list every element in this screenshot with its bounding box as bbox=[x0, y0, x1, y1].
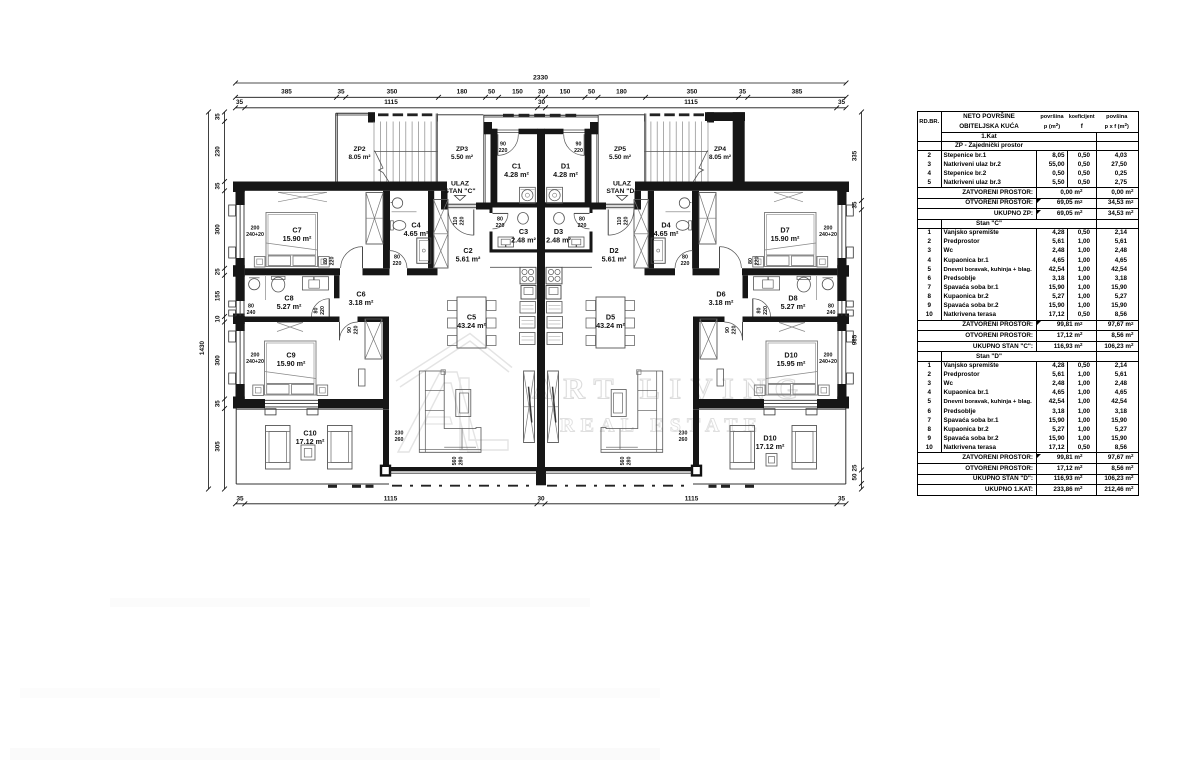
svg-text:50: 50 bbox=[852, 473, 859, 480]
svg-text:25: 25 bbox=[852, 464, 859, 471]
svg-text:15.90 m²: 15.90 m² bbox=[277, 359, 306, 368]
svg-text:1115: 1115 bbox=[384, 99, 398, 106]
svg-text:30: 30 bbox=[537, 496, 545, 503]
svg-text:5.61 m²: 5.61 m² bbox=[456, 255, 481, 264]
svg-text:230: 230 bbox=[679, 431, 688, 437]
svg-text:150: 150 bbox=[560, 89, 571, 96]
svg-text:15.90 m²: 15.90 m² bbox=[283, 234, 312, 243]
svg-text:15.95 m²: 15.95 m² bbox=[777, 359, 806, 368]
svg-text:80: 80 bbox=[757, 308, 763, 314]
svg-text:220: 220 bbox=[460, 217, 466, 226]
svg-text:280: 280 bbox=[627, 457, 633, 466]
svg-text:STAN "C": STAN "C" bbox=[444, 188, 475, 195]
svg-text:17.12 m²: 17.12 m² bbox=[296, 437, 325, 446]
svg-text:43.24 m²: 43.24 m² bbox=[457, 321, 486, 330]
svg-text:305: 305 bbox=[215, 441, 222, 452]
svg-text:50: 50 bbox=[488, 89, 496, 96]
svg-text:180: 180 bbox=[457, 89, 468, 96]
svg-text:4.65 m²: 4.65 m² bbox=[404, 229, 429, 238]
svg-text:385: 385 bbox=[281, 89, 292, 96]
svg-text:10: 10 bbox=[215, 315, 222, 322]
svg-text:17.12 m²: 17.12 m² bbox=[756, 442, 785, 451]
svg-text:2.48 m²: 2.48 m² bbox=[546, 236, 571, 245]
svg-text:560: 560 bbox=[620, 457, 626, 466]
svg-text:220: 220 bbox=[393, 261, 402, 267]
svg-text:ZP2: ZP2 bbox=[353, 146, 365, 153]
svg-text:50: 50 bbox=[588, 89, 596, 96]
svg-text:220: 220 bbox=[574, 148, 583, 154]
svg-text:5.27 m²: 5.27 m² bbox=[277, 302, 302, 311]
svg-text:4.65 m²: 4.65 m² bbox=[654, 229, 679, 238]
svg-text:80: 80 bbox=[314, 308, 320, 314]
svg-text:35: 35 bbox=[215, 182, 222, 189]
svg-text:220: 220 bbox=[496, 223, 505, 229]
svg-text:220: 220 bbox=[499, 148, 508, 154]
svg-text:240: 240 bbox=[247, 310, 256, 316]
svg-text:ZP4: ZP4 bbox=[714, 146, 726, 153]
svg-text:240+20: 240+20 bbox=[819, 232, 837, 238]
svg-text:35: 35 bbox=[852, 201, 859, 208]
svg-text:30: 30 bbox=[538, 99, 546, 106]
svg-text:200: 200 bbox=[251, 226, 260, 232]
svg-text:300: 300 bbox=[215, 224, 222, 235]
svg-text:180: 180 bbox=[616, 89, 627, 96]
svg-text:8.05 m²: 8.05 m² bbox=[709, 154, 731, 161]
svg-text:240+20: 240+20 bbox=[246, 359, 264, 365]
svg-text:90: 90 bbox=[576, 142, 582, 148]
svg-text:35: 35 bbox=[739, 89, 747, 96]
svg-text:240+20: 240+20 bbox=[819, 359, 837, 365]
svg-text:4.28 m²: 4.28 m² bbox=[504, 170, 529, 179]
svg-text:80: 80 bbox=[579, 217, 585, 223]
svg-text:80: 80 bbox=[248, 304, 254, 310]
svg-text:80: 80 bbox=[497, 217, 503, 223]
svg-text:90: 90 bbox=[500, 142, 506, 148]
svg-text:200: 200 bbox=[824, 226, 833, 232]
svg-text:30: 30 bbox=[538, 89, 546, 96]
svg-text:25: 25 bbox=[215, 268, 222, 275]
svg-text:155: 155 bbox=[215, 290, 222, 301]
svg-text:350: 350 bbox=[387, 89, 398, 96]
svg-text:985: 985 bbox=[852, 334, 859, 345]
svg-text:90: 90 bbox=[725, 327, 731, 333]
svg-text:STAN "D": STAN "D" bbox=[606, 188, 637, 195]
svg-text:80: 80 bbox=[682, 255, 688, 261]
svg-text:3.18 m²: 3.18 m² bbox=[349, 298, 374, 307]
svg-text:220: 220 bbox=[763, 306, 769, 315]
svg-text:260: 260 bbox=[395, 437, 404, 443]
svg-text:220: 220 bbox=[755, 257, 761, 266]
svg-text:220: 220 bbox=[681, 261, 690, 267]
svg-text:300: 300 bbox=[215, 355, 222, 366]
svg-text:110: 110 bbox=[617, 217, 623, 226]
svg-text:220: 220 bbox=[330, 257, 336, 266]
svg-text:80: 80 bbox=[748, 258, 754, 264]
svg-text:5.50 m²: 5.50 m² bbox=[451, 154, 473, 161]
svg-text:35: 35 bbox=[236, 99, 244, 106]
svg-text:80: 80 bbox=[828, 304, 834, 310]
svg-text:ZP5: ZP5 bbox=[614, 146, 626, 153]
svg-text:240: 240 bbox=[827, 310, 836, 316]
svg-text:80: 80 bbox=[394, 255, 400, 261]
svg-text:35: 35 bbox=[337, 89, 345, 96]
svg-text:220: 220 bbox=[624, 217, 630, 226]
svg-text:43.24 m²: 43.24 m² bbox=[596, 321, 625, 330]
svg-text:35: 35 bbox=[215, 113, 222, 120]
svg-text:35: 35 bbox=[215, 400, 222, 407]
svg-text:220: 220 bbox=[354, 326, 360, 335]
svg-text:150: 150 bbox=[512, 89, 523, 96]
svg-text:240+20: 240+20 bbox=[246, 232, 264, 238]
svg-text:1115: 1115 bbox=[384, 496, 398, 503]
svg-text:35: 35 bbox=[838, 99, 846, 106]
svg-text:5.50 m²: 5.50 m² bbox=[609, 154, 631, 161]
svg-text:1115: 1115 bbox=[684, 99, 698, 106]
svg-text:90: 90 bbox=[347, 327, 353, 333]
svg-text:15.90 m²: 15.90 m² bbox=[771, 234, 800, 243]
svg-text:220: 220 bbox=[578, 223, 587, 229]
svg-text:4.28 m²: 4.28 m² bbox=[553, 170, 578, 179]
svg-text:200: 200 bbox=[824, 353, 833, 359]
svg-text:ZP3: ZP3 bbox=[456, 146, 468, 153]
svg-text:5.27 m²: 5.27 m² bbox=[781, 302, 806, 311]
svg-text:2.48 m²: 2.48 m² bbox=[511, 236, 536, 245]
svg-text:110: 110 bbox=[453, 217, 459, 226]
svg-text:260: 260 bbox=[679, 437, 688, 443]
svg-text:220: 220 bbox=[320, 306, 326, 315]
svg-text:200: 200 bbox=[251, 353, 260, 359]
svg-text:2330: 2330 bbox=[533, 75, 548, 82]
svg-text:280: 280 bbox=[459, 457, 465, 466]
svg-text:230: 230 bbox=[215, 146, 222, 157]
svg-text:35: 35 bbox=[236, 496, 244, 503]
svg-text:1430: 1430 bbox=[199, 340, 206, 355]
svg-text:80: 80 bbox=[323, 258, 329, 264]
svg-text:ULAZ: ULAZ bbox=[613, 181, 631, 188]
svg-text:230: 230 bbox=[395, 431, 404, 437]
svg-text:5.61 m²: 5.61 m² bbox=[602, 255, 627, 264]
svg-text:350: 350 bbox=[687, 89, 698, 96]
svg-text:1115: 1115 bbox=[685, 496, 699, 503]
svg-text:220: 220 bbox=[732, 326, 738, 335]
svg-text:385: 385 bbox=[792, 89, 803, 96]
svg-text:8.05 m²: 8.05 m² bbox=[348, 154, 370, 161]
svg-text:560: 560 bbox=[452, 457, 458, 466]
svg-text:ULAZ: ULAZ bbox=[451, 181, 469, 188]
svg-text:3.18 m²: 3.18 m² bbox=[709, 298, 734, 307]
svg-text:335: 335 bbox=[852, 150, 859, 161]
svg-text:35: 35 bbox=[838, 496, 846, 503]
